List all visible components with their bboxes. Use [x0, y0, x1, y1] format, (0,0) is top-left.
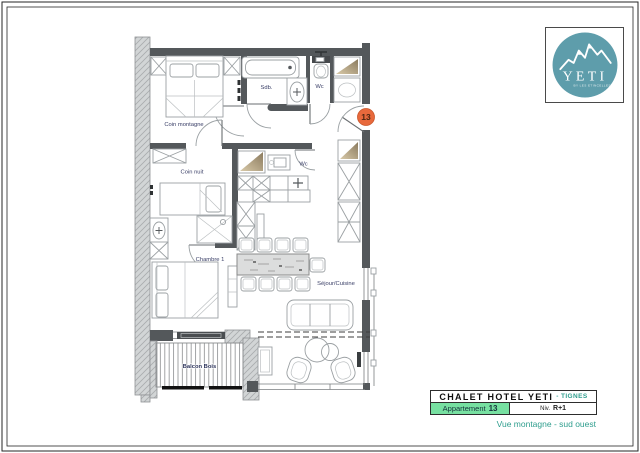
bathroom: [242, 57, 307, 105]
sink-icon: [287, 78, 307, 105]
apartment-number: 13: [489, 404, 498, 413]
coin-montagne-room: [151, 56, 241, 117]
double-bed-icon: [152, 262, 218, 318]
yeti-logo: YETI BY LES ETINCELLES: [545, 27, 624, 103]
level-label: Niv.: [540, 406, 550, 412]
entry-closet: [334, 57, 360, 102]
title-block: CHALET HOTEL YETI - TIGNES Appartement 1…: [430, 390, 597, 429]
title-block-row: Appartement 13 Niv. R+1: [430, 403, 597, 415]
room-label-sejour-cuisine: Séjour/Cuisine: [317, 281, 355, 287]
tv-icon: [357, 352, 361, 367]
bathtub-icon: [242, 57, 299, 78]
logo-wordmark: YETI: [562, 69, 607, 84]
dining-table-icon: [237, 238, 325, 291]
view-caption: Vue montagne - sud ouest: [430, 419, 597, 429]
logo-tagline: BY LES ETINCELLES: [573, 84, 610, 88]
wardrobe-icon: [224, 57, 240, 75]
level-value: R+1: [553, 405, 566, 412]
coffee-table-icon: [305, 338, 339, 362]
balcony-railing: [162, 386, 204, 390]
wardrobe-icon: [153, 149, 186, 163]
room-label-wc-mid: Wc: [299, 162, 307, 168]
apartment-cell: Appartement 13: [431, 403, 510, 414]
apartment-label: Appartement: [443, 404, 486, 413]
wardrobe-icon: [151, 57, 167, 75]
sink-icon: [150, 218, 168, 243]
toilet-icon: [268, 155, 290, 170]
overhang-dashed-line: [258, 332, 370, 337]
room-label-wc-top: Wc: [315, 84, 323, 90]
room-label-chambre-1: Chambre 1: [196, 257, 225, 263]
sideboard-icon: [258, 347, 272, 375]
sofa-icon: [287, 300, 353, 330]
tv-unit-icon: [177, 332, 225, 339]
coin-nuit-room: [150, 149, 232, 243]
hotel-name: CHALET HOTEL YETI: [439, 392, 553, 402]
yeti-logo-mark: YETI BY LES ETINCELLES: [551, 31, 619, 99]
single-bed-icon: [160, 183, 225, 215]
room-label-balcon: Balcon Bois: [183, 364, 217, 370]
hall-wardrobes: [338, 140, 360, 242]
level-cell: Niv. R+1: [510, 403, 596, 414]
unit-number: 13: [361, 112, 371, 122]
drawing-sheet: 13: [0, 0, 640, 453]
hotel-location: - TIGNES: [556, 393, 587, 400]
double-bed-icon: [166, 56, 223, 117]
balcony-railing: [209, 386, 242, 390]
room-label-coin-nuit: Coin nuit: [181, 170, 204, 176]
title-block-header: CHALET HOTEL YETI - TIGNES: [430, 390, 597, 403]
shower-icon: [197, 216, 232, 243]
armchair-icon: [285, 355, 313, 385]
logo-circle: [552, 33, 617, 98]
unit-number-badge: 13: [358, 109, 375, 126]
floor-plan: 13: [0, 0, 640, 453]
room-label-coin-montagne: Coin montagne: [164, 122, 203, 128]
room-label-sdb: Sdb.: [261, 85, 273, 91]
wc-mid-room: [238, 151, 290, 173]
wardrobe-icon: [150, 242, 168, 259]
